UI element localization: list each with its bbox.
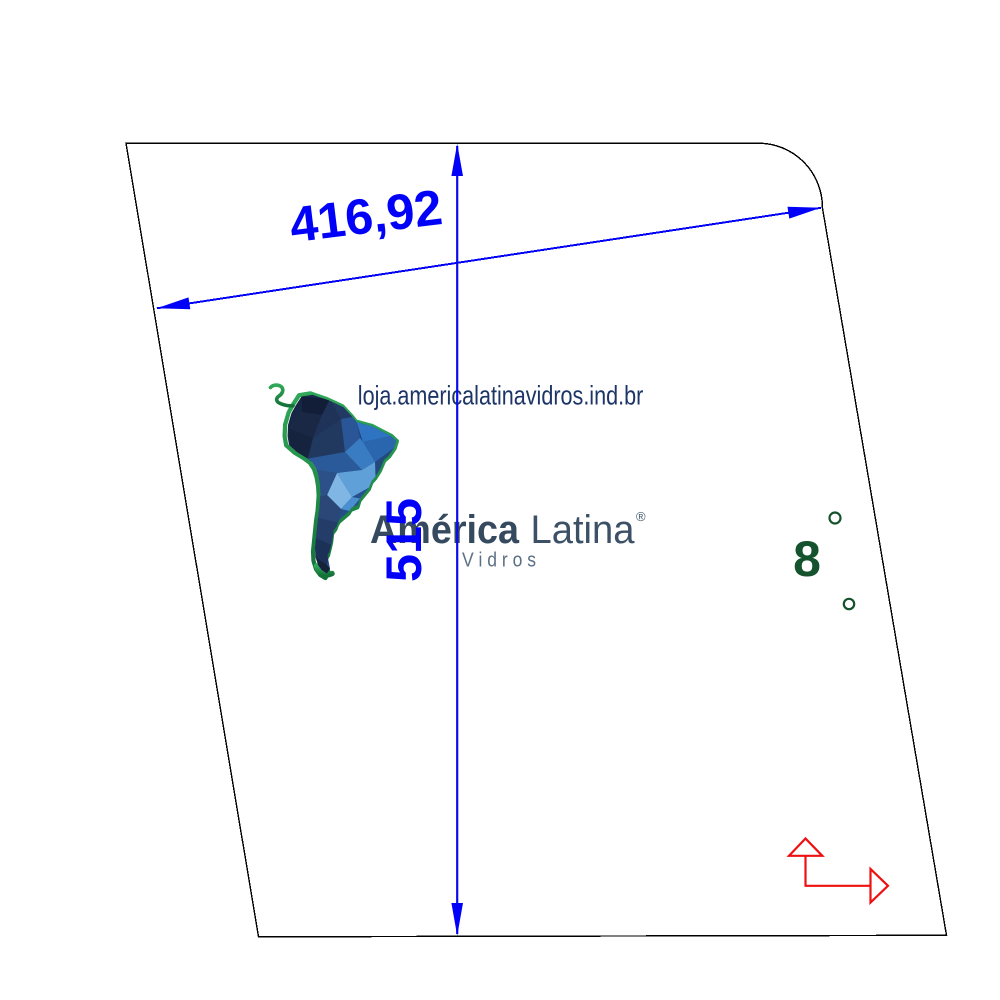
svg-text:loja.americalatinavidros.ind.b: loja.americalatinavidros.ind.br <box>358 381 644 411</box>
svg-text:®: ® <box>636 509 646 524</box>
svg-text:Latina: Latina <box>531 508 635 552</box>
svg-text:515: 515 <box>376 498 432 582</box>
svg-text:416,92: 416,92 <box>287 179 446 253</box>
svg-text:V i d r o s: V i d r o s <box>462 549 536 572</box>
svg-text:8: 8 <box>793 531 821 587</box>
